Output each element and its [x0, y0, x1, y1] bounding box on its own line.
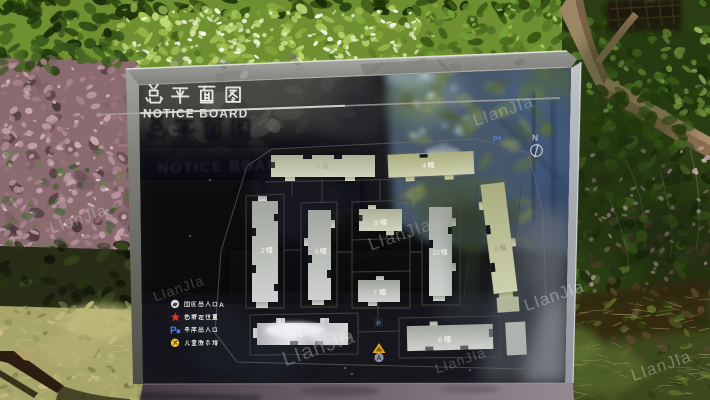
svg-text:A: A — [219, 302, 224, 309]
svg-text:N: N — [532, 133, 538, 143]
svg-text:P: P — [170, 326, 177, 337]
svg-text:2: 2 — [261, 246, 265, 255]
svg-text:A: A — [377, 356, 382, 362]
svg-text:8: 8 — [315, 247, 319, 256]
svg-text:P: P — [493, 136, 498, 143]
svg-text:P: P — [376, 321, 381, 328]
svg-text:NOTICE BOARD: NOTICE BOARD — [143, 107, 249, 121]
svg-text:10: 10 — [432, 250, 440, 257]
svg-text:7: 7 — [373, 288, 377, 297]
svg-text:3: 3 — [316, 164, 320, 171]
svg-text:4: 4 — [422, 161, 427, 170]
svg-text:9: 9 — [374, 218, 378, 227]
svg-text:6: 6 — [438, 335, 442, 344]
